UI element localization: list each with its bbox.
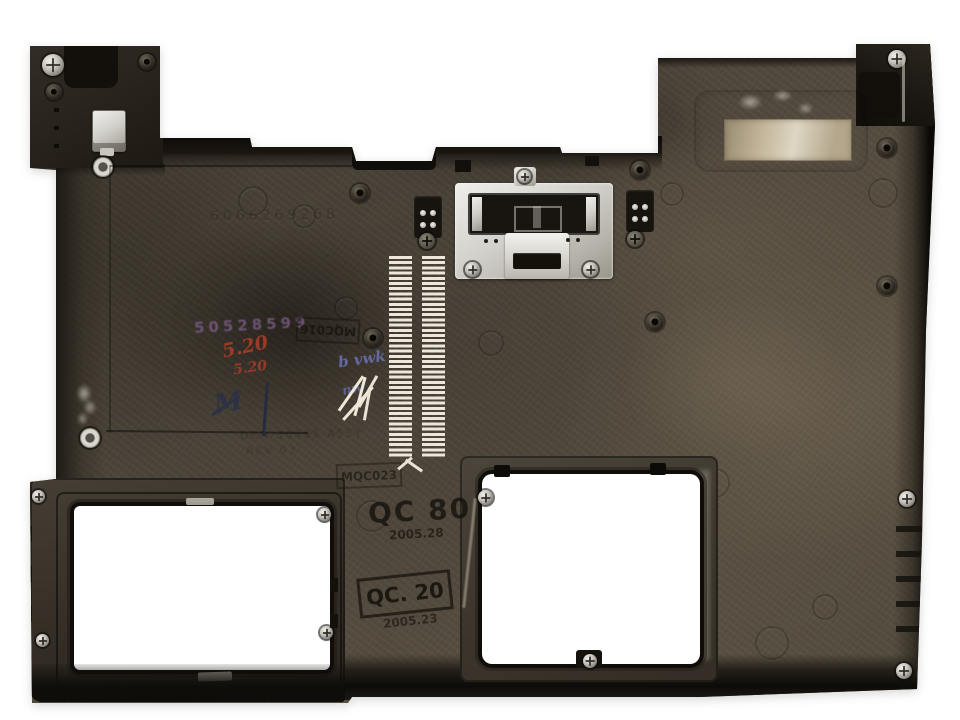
contact-dot bbox=[632, 216, 638, 222]
rivet-hole bbox=[566, 238, 570, 242]
screw bbox=[583, 262, 598, 277]
screw bbox=[465, 262, 480, 277]
screw bbox=[42, 54, 64, 76]
pin-holes bbox=[54, 108, 59, 160]
screw bbox=[583, 654, 597, 668]
contact-dot bbox=[420, 210, 426, 216]
molded-text-line: DCN-30495 A55Y bbox=[240, 427, 363, 442]
screw-boss bbox=[878, 277, 896, 295]
qc80-stamp-text: QC 80 bbox=[367, 491, 472, 529]
rivet-hole bbox=[576, 238, 580, 242]
screw-boss bbox=[646, 313, 664, 331]
hdd-frame-bottom-shade bbox=[30, 664, 345, 702]
vent-grille-column bbox=[389, 256, 412, 458]
white-check-scratch bbox=[405, 459, 423, 473]
metal-clip-foot bbox=[100, 148, 114, 156]
screw bbox=[896, 663, 912, 679]
screw bbox=[36, 634, 49, 647]
mqc023-stamp-text: MQC023 bbox=[341, 468, 397, 484]
molded-text-line: REV 03 bbox=[246, 444, 298, 458]
frame-hook bbox=[22, 566, 32, 582]
latch-block-right bbox=[626, 190, 654, 232]
mqc016-stamp-text: MQC016 bbox=[300, 322, 357, 339]
mqc023-stamp: MQC023 bbox=[336, 462, 403, 489]
mold-line bbox=[110, 165, 352, 167]
screw-boss bbox=[139, 54, 155, 70]
embossed-serial-text: 6066269268 bbox=[210, 207, 339, 225]
molded-circle bbox=[478, 330, 504, 356]
molded-circle bbox=[334, 296, 358, 320]
latch-slot bbox=[513, 253, 561, 269]
hinge-block-left-dark bbox=[64, 44, 118, 88]
contact-dot bbox=[430, 222, 436, 228]
case-shadow-wrap: 6066269268 50528599 5.20 5.20 M b vwk nw… bbox=[0, 0, 960, 720]
screw-boss bbox=[46, 84, 62, 100]
frame-hook bbox=[22, 645, 32, 661]
qc80-date-text: 2005.28 bbox=[389, 526, 444, 543]
screw-boss bbox=[351, 184, 369, 202]
molded-circle bbox=[660, 182, 684, 206]
washer-screw bbox=[80, 428, 100, 448]
vent-grille-column bbox=[422, 256, 445, 458]
white-scuffs bbox=[72, 382, 102, 428]
metal-strip bbox=[186, 498, 214, 505]
white-scuffs bbox=[732, 86, 824, 118]
strip-tab bbox=[330, 614, 338, 628]
molded-circle bbox=[812, 594, 838, 620]
qc20-stamp-text: QC. 20 bbox=[365, 578, 445, 610]
molded-circle bbox=[868, 178, 898, 208]
screw bbox=[899, 491, 915, 507]
latch-block-left bbox=[414, 196, 442, 238]
mold-line bbox=[109, 165, 111, 433]
rivet-hole bbox=[484, 239, 488, 243]
corner-clip bbox=[650, 463, 666, 475]
molded-circle bbox=[755, 626, 789, 660]
worn-label-residue bbox=[724, 119, 852, 161]
screw bbox=[478, 490, 493, 505]
frame-hook bbox=[22, 606, 32, 622]
cutout-tab bbox=[586, 197, 596, 231]
screw-boss bbox=[364, 329, 382, 347]
contact-dot bbox=[430, 210, 436, 216]
screw bbox=[518, 170, 531, 183]
cutout-bar bbox=[533, 206, 541, 228]
screw bbox=[32, 490, 45, 503]
rim-tab bbox=[585, 156, 599, 166]
frame-hook bbox=[22, 526, 32, 542]
memory-bay-opening bbox=[482, 474, 700, 664]
antenna-pin bbox=[902, 56, 905, 122]
cutout-tab bbox=[472, 197, 482, 231]
metal-clip-left bbox=[92, 110, 126, 152]
mqc016-stamp: MQC016 bbox=[295, 316, 360, 344]
contact-dot bbox=[632, 204, 638, 210]
hdd-bay-opening bbox=[74, 506, 330, 670]
top-rim bbox=[158, 136, 662, 156]
rivet-hole bbox=[494, 239, 498, 243]
contact-dot bbox=[420, 222, 426, 228]
side-vent-ribs bbox=[896, 526, 922, 648]
photo-stage: 6066269268 50528599 5.20 5.20 M b vwk nw… bbox=[0, 0, 960, 720]
screw bbox=[318, 508, 331, 521]
screw-dark bbox=[419, 233, 435, 249]
strip-tab bbox=[330, 578, 338, 592]
corner-clip bbox=[494, 465, 510, 477]
screw-dark bbox=[627, 231, 643, 247]
screw-boss bbox=[631, 161, 649, 179]
qc20-stamp: QC. 20 bbox=[356, 569, 454, 619]
contact-dot bbox=[642, 216, 648, 222]
top-rim-notch bbox=[352, 146, 436, 170]
laptop-bottom-case: 6066269268 50528599 5.20 5.20 M b vwk nw… bbox=[0, 0, 960, 720]
contact-dot bbox=[642, 204, 648, 210]
rim-tab bbox=[455, 160, 471, 172]
screw-boss bbox=[878, 139, 896, 157]
